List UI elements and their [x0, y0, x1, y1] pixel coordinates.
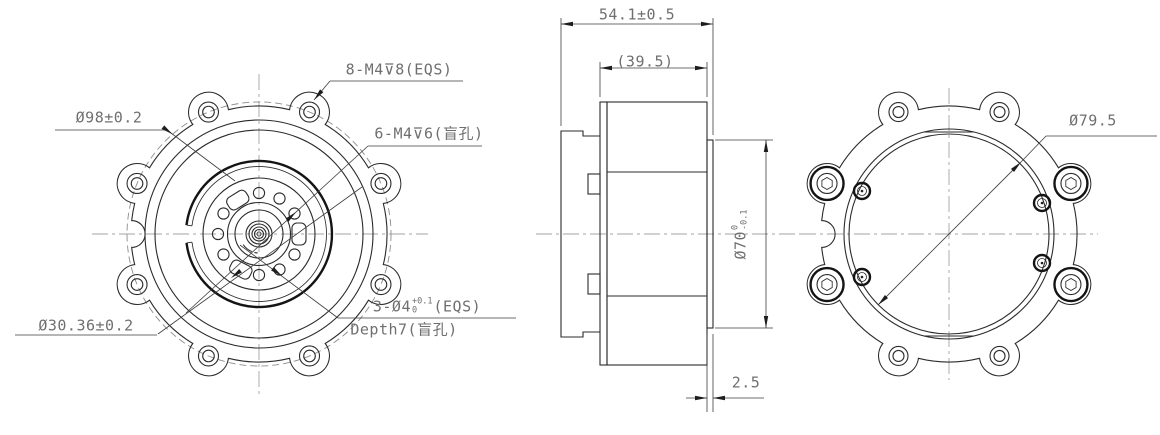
- flange-hole: [375, 279, 387, 291]
- screw-head: [817, 173, 837, 193]
- rear-flange-hole-boss: [889, 103, 908, 122]
- callout-6-m4-taps: 6-M4⊽6(盲孔): [374, 127, 483, 142]
- hex-socket: [1066, 178, 1076, 190]
- screw-head: [1061, 173, 1081, 193]
- dim-line-opening-dia: [878, 162, 1021, 305]
- callout-pin-hole-depth: Depth7(盲孔): [350, 323, 457, 338]
- rear-flange-hole-boss: [889, 346, 908, 365]
- dim-front-pitch-circle: Ø30.36±0.2: [38, 319, 133, 334]
- pin-hole-tolerance-stack: +0.1 0: [412, 298, 432, 317]
- dimension-arrowhead: [713, 396, 725, 400]
- callout-8-m4-taps: 8-M4⊽8(EQS): [346, 63, 453, 78]
- dim-spigot-thickness: 2.5: [732, 376, 761, 391]
- dim-rear-opening-diameter: Ø79.5: [1069, 114, 1117, 129]
- dim-overall-length: 54.1±0.5: [599, 8, 675, 23]
- flange-hole-boss: [127, 275, 147, 295]
- rear-flange-hole: [893, 107, 904, 118]
- screw-head: [1061, 275, 1081, 295]
- spigot-dia-tolerance-stack: 0 -0.1: [732, 209, 751, 229]
- dimension-arrowhead: [695, 66, 707, 70]
- motor-body: [607, 102, 707, 365]
- dimension-arrowhead: [764, 316, 768, 328]
- terminal-tab: [588, 174, 600, 194]
- pin-hole-spec: 3-Ø4 +0.1 0 (EQS): [373, 298, 481, 317]
- dim-body-length-ref: (39.5): [616, 55, 673, 70]
- hex-socket: [822, 279, 832, 291]
- flange-hole: [375, 178, 387, 190]
- pcd-hole: [218, 208, 229, 219]
- shaft-key-mark: [254, 252, 257, 253]
- leader-6m4: [186, 146, 368, 313]
- rear-flange-hole-boss: [990, 103, 1009, 122]
- dimension-arrowhead: [600, 66, 612, 70]
- pcd-hole: [274, 193, 285, 204]
- dimension-arrowhead: [764, 140, 768, 152]
- dim-front-bolt-circle: Ø98±0.2: [76, 111, 143, 126]
- screw-head-washer: [811, 268, 844, 301]
- dimension-arrowhead: [561, 22, 573, 26]
- leader-d98: [167, 130, 235, 181]
- rear-flange-hole: [994, 350, 1005, 361]
- spigot-dia-prefix: Ø70: [734, 231, 749, 260]
- screw-head-washer: [1054, 268, 1087, 301]
- inner-screw-center: [861, 276, 864, 279]
- front-view: [92, 74, 428, 396]
- pin-hole-tol-lower: 0: [412, 307, 432, 316]
- flange-hole-boss: [198, 102, 218, 122]
- rear-flange-hole-boss: [990, 346, 1009, 365]
- spigot-tol-lower: -0.1: [741, 209, 750, 229]
- terminal-tab: [588, 274, 600, 294]
- flange-plate-edge: [600, 102, 607, 365]
- flange-hole-boss: [371, 173, 391, 193]
- dim-spigot-diameter: Ø70 0 -0.1: [732, 208, 751, 259]
- dimension-arrowhead: [695, 396, 707, 400]
- engineering-drawing-canvas: Ø98±0.2 8-M4⊽8(EQS) 6-M4⊽6(盲孔) Ø30.36±0.…: [0, 0, 1160, 435]
- inner-screw-center: [861, 190, 864, 193]
- flange-hole: [131, 279, 143, 291]
- flange-hole: [203, 106, 215, 118]
- dimension-arrowhead: [701, 22, 713, 26]
- screw-head: [817, 275, 837, 295]
- rotor-slot: [225, 188, 251, 212]
- screw-head-washer: [1054, 167, 1087, 200]
- motor-three-view-drawing: [0, 0, 1160, 435]
- rear-flange-hole: [994, 107, 1005, 118]
- side-view: [536, 102, 800, 365]
- hex-socket: [1066, 279, 1076, 291]
- hex-socket: [822, 178, 832, 190]
- ring-gap-end: [187, 242, 192, 243]
- callout-3-pin-holes: 3-Ø4 +0.1 0 (EQS): [373, 298, 481, 317]
- flange-hole-boss: [371, 275, 391, 295]
- spigot-dia-spec: Ø70 0 -0.1: [732, 208, 751, 259]
- screw-head-washer: [811, 167, 844, 200]
- pin-hole-suffix: (EQS): [433, 300, 481, 315]
- inner-screw-center: [1041, 202, 1044, 205]
- inner-screw-center: [1041, 262, 1044, 265]
- leader-d3036: [158, 187, 362, 334]
- pin-hole-prefix: 3-Ø4: [373, 300, 411, 315]
- pcd-hole: [218, 249, 229, 260]
- ring-gap-end: [187, 225, 192, 226]
- leader-opening-dia: [1021, 136, 1046, 162]
- rear-flange-hole: [893, 350, 904, 361]
- pcd-hole: [289, 249, 300, 260]
